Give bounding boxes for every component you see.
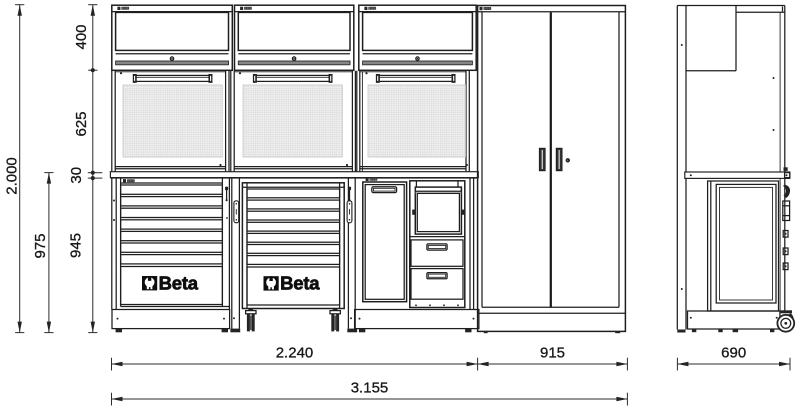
- svg-text:3.155: 3.155: [351, 380, 389, 397]
- svg-text:690: 690: [721, 345, 746, 362]
- svg-text:2.000: 2.000: [4, 157, 21, 195]
- svg-text:945: 945: [68, 233, 85, 258]
- svg-text:2.240: 2.240: [276, 345, 314, 362]
- svg-text:915: 915: [540, 345, 565, 362]
- svg-text:975: 975: [32, 233, 49, 258]
- svg-text:400: 400: [73, 24, 90, 49]
- svg-text:625: 625: [73, 111, 90, 136]
- svg-text:30: 30: [68, 167, 85, 184]
